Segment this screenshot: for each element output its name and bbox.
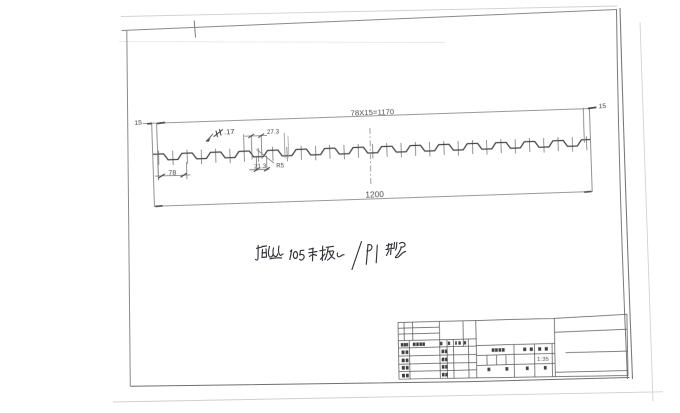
svg-text:R5: R5 (276, 163, 285, 169)
svg-text:1200: 1200 (365, 190, 384, 200)
svg-text:78: 78 (168, 168, 176, 177)
svg-text:27.3: 27.3 (267, 129, 280, 136)
svg-text:.17: .17 (224, 127, 235, 136)
svg-text:15: 15 (134, 120, 142, 127)
svg-text:78X15=1170: 78X15=1170 (350, 107, 394, 117)
svg-text:1:35: 1:35 (537, 357, 550, 363)
svg-text:21.3: 21.3 (254, 163, 267, 170)
svg-text:15: 15 (598, 103, 606, 110)
